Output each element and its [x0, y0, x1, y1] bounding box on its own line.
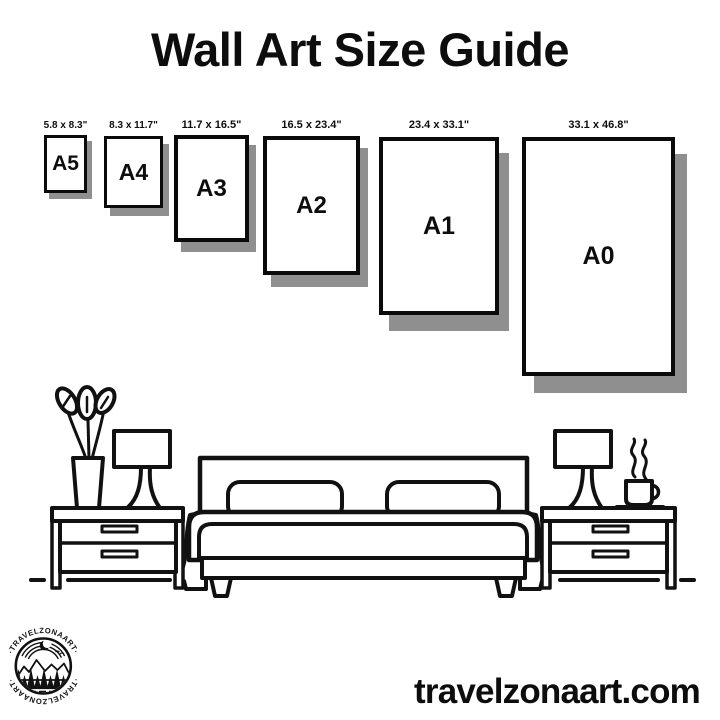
paper-box-a3: A3	[174, 135, 249, 242]
size-code-a4: A4	[119, 159, 148, 186]
nightstand-right-icon	[542, 508, 675, 588]
nightstand-left-icon	[52, 508, 183, 588]
size-dimensions-label-a0: 33.1 x 46.8"	[568, 119, 628, 132]
coffee-cup-icon	[617, 439, 663, 508]
bedroom-scene-illustration	[0, 378, 720, 610]
size-code-a2: A2	[296, 192, 327, 220]
paper-box-a4: A4	[104, 136, 163, 208]
table-lamp-right-icon	[555, 431, 611, 508]
size-code-a5: A5	[52, 152, 79, 176]
paper-size-comparison: 5.8 x 8.3"A58.3 x 11.7"A411.7 x 16.5"A31…	[0, 0, 720, 400]
double-bed-icon	[179, 458, 547, 596]
paper-box-a2: A2	[263, 136, 360, 275]
size-dimensions-label-a3: 11.7 x 16.5"	[182, 119, 242, 132]
plant-vase-icon	[53, 385, 119, 508]
brand-logo: ·TRAVELZONAART· ·TRAVELZONAART·	[0, 620, 90, 715]
size-dimensions-label-a5: 5.8 x 8.3"	[44, 119, 88, 132]
website-url: travelzonaart.com	[414, 672, 700, 712]
paper-box-a5: A5	[44, 135, 87, 193]
size-dimensions-label-a4: 8.3 x 11.7"	[109, 119, 158, 132]
wall-art-size-guide-page: Wall Art Size Guide 5.8 x 8.3"A58.3 x 11…	[0, 0, 720, 720]
size-code-a3: A3	[196, 175, 227, 203]
size-code-a1: A1	[423, 212, 455, 241]
size-code-a0: A0	[583, 242, 615, 271]
paper-box-a1: A1	[379, 137, 499, 315]
size-dimensions-label-a1: 23.4 x 33.1"	[409, 119, 469, 132]
table-lamp-left-icon	[114, 431, 170, 508]
size-dimensions-label-a2: 16.5 x 23.4"	[281, 119, 341, 132]
paper-box-a0: A0	[522, 137, 675, 376]
